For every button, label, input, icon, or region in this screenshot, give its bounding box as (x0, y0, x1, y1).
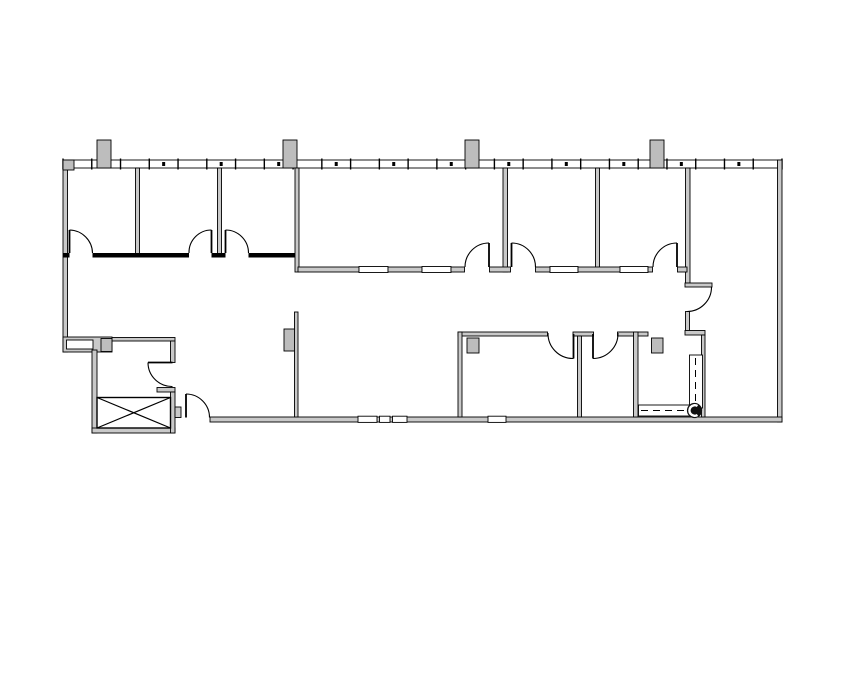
wall-segment (686, 312, 690, 334)
column (465, 140, 479, 168)
wall-segment (578, 336, 582, 417)
door-swing (593, 333, 618, 359)
wall-segment (458, 332, 462, 417)
window-panel (488, 416, 506, 422)
wall-segment (295, 168, 299, 272)
elevator-shaft-symbol (97, 398, 171, 429)
door-swing (189, 230, 212, 253)
door-swing (512, 243, 536, 267)
wall-segment (596, 168, 600, 271)
glazed-panel (359, 267, 388, 273)
wall-segment (171, 341, 176, 363)
wall-segment (295, 312, 299, 417)
door-swing (548, 333, 574, 359)
window-mullion-dot (277, 162, 280, 166)
water-heater-symbol (687, 403, 702, 418)
wall-segment (92, 350, 97, 433)
wall-segment (458, 332, 548, 336)
window-panel (358, 416, 377, 422)
glazed-panel (422, 267, 451, 273)
wall-segment (388, 267, 422, 272)
glazed-panel (620, 267, 648, 273)
door-swing (226, 230, 249, 253)
glazed-panel (550, 267, 578, 273)
interior-walls (63, 168, 712, 417)
column (63, 160, 74, 170)
wall-segment (685, 283, 712, 287)
floor-plan-viewport (0, 0, 855, 678)
window-mullion-dot (220, 162, 223, 166)
wall-segment (157, 388, 175, 393)
wall-segment (93, 253, 190, 258)
wall-segment (503, 168, 508, 272)
column (650, 140, 664, 168)
door-swing (148, 363, 173, 387)
wall-segment (778, 160, 783, 422)
wall-segment (92, 428, 175, 433)
floor-plan-canvas (0, 0, 855, 678)
column (652, 338, 664, 353)
column (101, 339, 112, 352)
wall-segment (678, 267, 688, 272)
wall-segment (536, 267, 551, 272)
window-mullion-dot (162, 162, 165, 166)
window-mullion-dot (680, 162, 683, 166)
column (467, 338, 479, 353)
wall-segment (578, 267, 620, 272)
wall-segment (618, 332, 649, 336)
wall-segment (218, 168, 222, 254)
door-swing (70, 230, 93, 253)
wall-segment (249, 253, 296, 258)
window-panel (393, 416, 408, 422)
window-mullion-dot (737, 162, 740, 166)
wall-segment (685, 331, 705, 336)
wall-segment (136, 168, 140, 254)
window-mullion-dot (450, 162, 453, 166)
window-wall-band (63, 160, 782, 168)
window-mullion-dot (335, 162, 338, 166)
door-swing (653, 243, 677, 267)
door-swing (465, 243, 489, 267)
door-swing (687, 287, 712, 312)
exterior-walls (63, 159, 782, 434)
window-mullion-dot (565, 162, 568, 166)
wall-segment (634, 332, 639, 417)
wall-segment (648, 267, 653, 272)
wall-segment (490, 267, 511, 272)
window-mullion-dot (392, 162, 395, 166)
window-mullion-dot (622, 162, 625, 166)
window-mullion-dot (507, 162, 510, 166)
wall-segment (212, 253, 226, 258)
column (97, 140, 111, 168)
wall-segment (573, 332, 594, 336)
structural-columns (63, 140, 664, 353)
wall-segment (175, 407, 181, 418)
window-panel (380, 416, 391, 422)
wall-segment (112, 338, 175, 342)
wall-segment (298, 267, 359, 272)
wall-segment (451, 267, 465, 272)
wall-segment (63, 253, 70, 258)
column (283, 140, 297, 168)
wall-segment (686, 168, 691, 283)
wall-opening (67, 340, 94, 349)
door-swing (186, 394, 210, 418)
